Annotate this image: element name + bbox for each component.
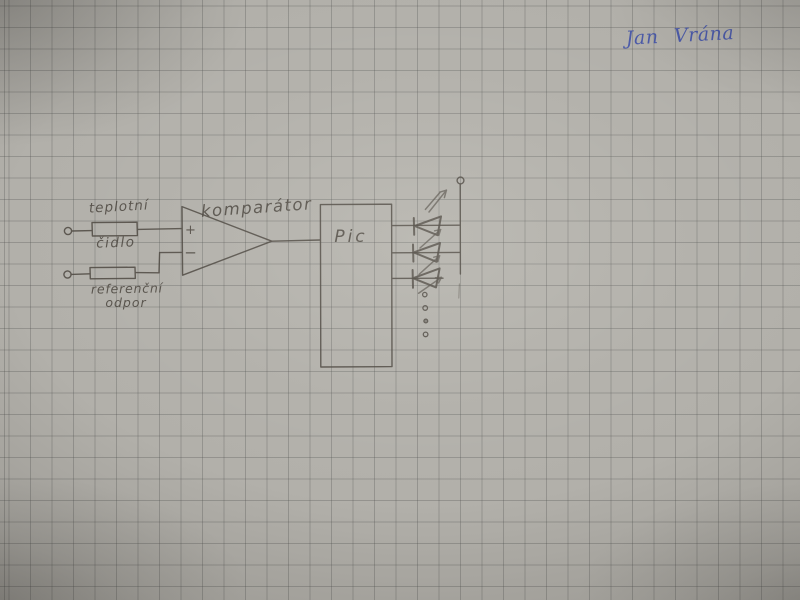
graph-paper-photo: teplotní čidlo referenční odpor komparát… [0,0,800,600]
continuation-dot-1 [423,292,427,296]
continuation-dot-3 [424,319,428,323]
temperature-sensor-label-line2: čidlo [96,234,136,251]
emission-arrow-led-3 [419,277,442,293]
continuation-dot-2 [423,306,428,311]
wire-sensor-to-comparator [137,229,181,230]
comparator-plus-input-label: + [185,223,196,238]
input-terminal-top [64,227,71,234]
circuit-schematic: teplotní čidlo referenční odpor komparát… [0,0,800,600]
pic-label: Pic [334,227,367,247]
reference-resistor-box [90,267,135,279]
wire-reference-step-vertical [159,253,160,273]
comparator-minus-input-label: − [184,244,197,262]
emission-arrow-large [425,190,446,212]
reference-resistor-label-line2: odpor [105,295,146,310]
comparator-label: komparátor [200,194,313,221]
continuation-dot-4 [423,332,428,337]
input-terminal-bottom [64,271,71,278]
supply-rail-faint-end [459,284,460,298]
wire-comparator-to-pic [272,240,320,241]
wire-terminal-to-reference [71,274,90,275]
supply-terminal [457,177,464,184]
temperature-sensor-label-line1: teplotní [89,197,151,216]
